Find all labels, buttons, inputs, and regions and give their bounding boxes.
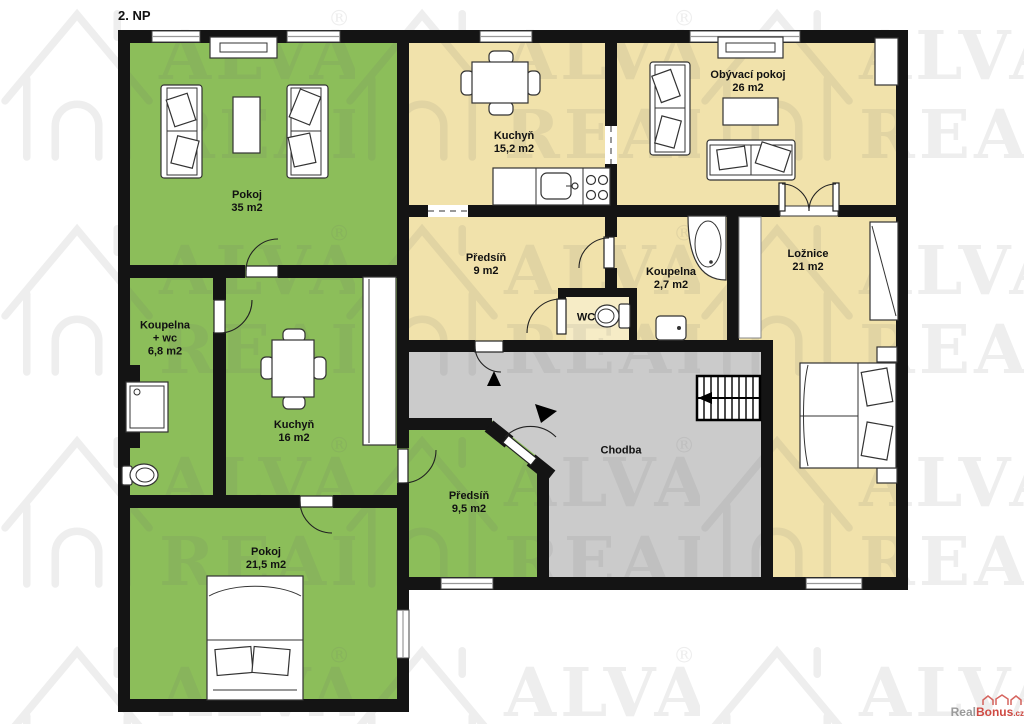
double-bed	[207, 576, 303, 700]
table	[233, 97, 260, 153]
nightstand	[877, 468, 897, 483]
toilet	[595, 304, 630, 328]
room-label-obyvaci: Obývací pokoj26 m2	[710, 69, 785, 95]
double-bed	[800, 363, 896, 468]
floor-plan-page: ALVA REAL ®	[0, 0, 1024, 724]
nightstand	[877, 347, 897, 362]
room-label-predsin-9: Předsíň9 m2	[466, 252, 506, 278]
cabinet	[875, 38, 898, 85]
floor-plan-svg: ALVA REAL ®	[0, 0, 1024, 724]
shaft	[739, 217, 761, 338]
room-label-pokoj-215: Pokoj21,5 m2	[246, 546, 286, 572]
window	[480, 31, 532, 42]
realbonus-text-red: Bonus	[976, 705, 1013, 719]
sideboard	[210, 37, 277, 58]
sofa	[287, 85, 328, 178]
wall-opening	[428, 205, 468, 217]
room-label-pokoj-35: Pokoj35 m2	[231, 189, 262, 215]
window	[441, 578, 493, 589]
window	[806, 578, 862, 589]
sofa	[650, 62, 690, 155]
stairs	[697, 376, 760, 420]
wardrobe	[870, 222, 898, 320]
toilet	[122, 464, 158, 486]
wall-opening	[605, 126, 617, 164]
coffee-table	[723, 98, 778, 125]
washing-machine	[126, 382, 168, 432]
room-label-koupelna-27: Koupelna2,7 m2	[646, 266, 696, 292]
floor-title: 2. NP	[118, 8, 151, 23]
sofa	[161, 85, 202, 178]
kitchen-counter	[363, 277, 396, 445]
realbonus-logo: RealBonus.cz	[936, 694, 1024, 720]
realbonus-houses-icon	[982, 694, 1022, 706]
sideboard	[718, 37, 783, 58]
washing-machine	[656, 316, 686, 340]
room-label-predsin-95: Předsíň9,5 m2	[449, 490, 489, 516]
room-label-loznice: Ložnice21 m2	[788, 248, 829, 274]
realbonus-text-gray: Real	[951, 705, 976, 719]
window	[152, 31, 200, 42]
room-label-wc: WC	[577, 312, 595, 325]
window	[397, 610, 409, 658]
kitchen-counter	[493, 168, 610, 205]
room-label-koupelna-68: Koupelna+ wc6,8 m2	[140, 320, 190, 359]
room-label-kuchyn-16: Kuchyň16 m2	[274, 419, 314, 445]
room-label-chodba: Chodba	[601, 445, 642, 458]
room-label-kuchyn-152: Kuchyň15,2 m2	[494, 130, 534, 156]
window	[287, 31, 340, 42]
sofa	[707, 140, 795, 180]
realbonus-text-tld: .cz	[1013, 709, 1024, 718]
